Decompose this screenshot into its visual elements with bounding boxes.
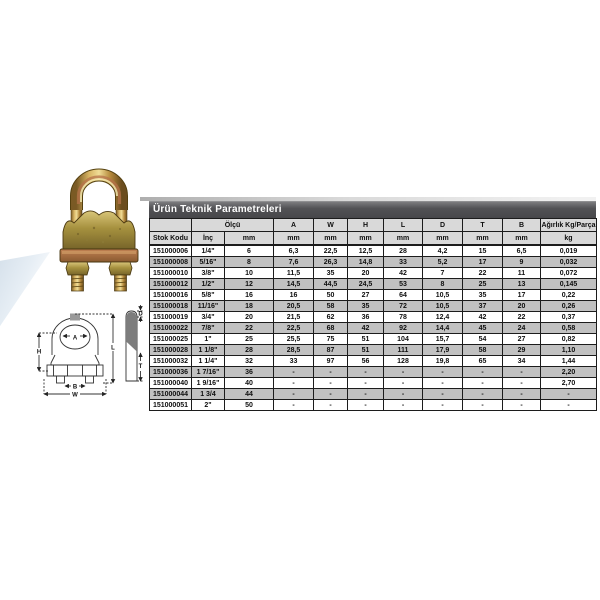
header-inc: İnç [192,232,225,246]
table-cell: 11 [503,268,541,279]
dim-label-t: T [139,364,143,370]
table-cell: - [423,378,463,389]
table-cell: 33 [274,356,314,367]
table-cell: 50 [225,400,274,411]
table-cell: - [463,378,503,389]
table-row: 1510000193/4"2021,562367812,442220,37 [150,312,597,323]
table-cell: - [314,389,348,400]
table-cell: 9 [503,257,541,268]
table-cell: 22,5 [314,245,348,257]
header-dim-b: B [503,219,541,232]
table-cell: 151000008 [150,257,192,268]
saddle-base [60,249,138,262]
table-cell: 75 [314,334,348,345]
table-cell: - [274,378,314,389]
table-cell: - [314,367,348,378]
hex-nut-left [66,262,89,275]
table-cell: - [314,378,348,389]
table-cell: 27 [503,334,541,345]
table-cell: - [503,378,541,389]
table-cell: 10 [225,268,274,279]
table-cell: 7/8" [192,323,225,334]
header-row-1: Ölçü A W H L D T B Ağırlık Kg/Parça [150,219,597,232]
table-cell: 78 [384,312,423,323]
table-row: 1510000103/8"1011,5352042722110,072 [150,268,597,279]
table-cell: 6,3 [274,245,314,257]
table-cell: - [348,389,384,400]
table-cell: 25,5 [274,334,314,345]
table-cell: 7 [423,268,463,279]
table-cell: 151000040 [150,378,192,389]
table-row: 1510000121/2"1214,544,524,553825130,145 [150,279,597,290]
table-cell: 1 3/4 [192,389,225,400]
table-cell: 42 [384,268,423,279]
table-cell: 7,6 [274,257,314,268]
dim-label-a: A [73,336,78,342]
table-cell: - [463,389,503,400]
table-cell: 62 [314,312,348,323]
table-cell: 6 [225,245,274,257]
header-olcu: Ölçü [192,219,274,232]
table-cell: 44,5 [314,279,348,290]
table-cell: - [348,400,384,411]
table-cell: 65 [463,356,503,367]
table-cell: 29 [503,345,541,356]
table-cell: - [423,367,463,378]
table-cell: 8 [225,257,274,268]
table-cell: 40 [225,378,274,389]
page: A H L B W D T Ürün Teknik Parametreleri … [0,0,600,600]
table-cell: 1" [192,334,225,345]
table-cell: - [274,400,314,411]
table-cell: 16 [225,290,274,301]
table-cell: 151000025 [150,334,192,345]
product-photo [54,154,144,302]
table-cell: 151000006 [150,245,192,257]
table-cell: 0,019 [541,245,597,257]
table-cell: 151000044 [150,389,192,400]
table-cell: 14,5 [274,279,314,290]
table-cell: 45 [463,323,503,334]
header-mm: mm [348,232,384,246]
table-cell: 25 [225,334,274,345]
table-row: 1510000165/8"161650276410,535170,22 [150,290,597,301]
table-cell: 42 [348,323,384,334]
table-cell: 35 [463,290,503,301]
table-cell: 42 [463,312,503,323]
table-cell: 0,032 [541,257,597,268]
table-cell: 26,3 [314,257,348,268]
table-cell: 53 [384,279,423,290]
table-cell: 0,22 [541,290,597,301]
table-cell: 151000036 [150,367,192,378]
table-row: 1510000227/8"2222,568429214,445240,58 [150,323,597,334]
table-cell: 32 [225,356,274,367]
header-mm: mm [384,232,423,246]
table-cell: 104 [384,334,423,345]
table-cell: 17 [503,290,541,301]
table-cell: 54 [463,334,503,345]
table-cell: - [314,400,348,411]
table-cell: 36 [348,312,384,323]
technical-drawing: A H L B W D T [27,301,145,403]
header-blank-cell [150,219,192,232]
table-row: 1510000061/4"66,322,512,5284,2156,50,019 [150,245,597,257]
table-cell: 22 [463,268,503,279]
table-cell: 2,20 [541,367,597,378]
table-cell: 16 [274,290,314,301]
table-body: 1510000061/4"66,322,512,5284,2156,50,019… [150,245,597,411]
spec-table-block: Ürün Teknik Parametreleri Ölçü A W H L D… [149,201,596,411]
table-cell: 2" [192,400,225,411]
table-cell: 68 [314,323,348,334]
table-cell: 15 [463,245,503,257]
table-cell: 151000018 [150,301,192,312]
table-cell: 50 [314,290,348,301]
table-cell: 33 [384,257,423,268]
table-cell: 151000012 [150,279,192,290]
table-cell: 2,70 [541,378,597,389]
table-cell: 34 [503,356,541,367]
table-cell: 151000028 [150,345,192,356]
table-cell: 35 [348,301,384,312]
table-cell: 10,5 [423,301,463,312]
table-cell: 11/16" [192,301,225,312]
table-cell: 5,2 [423,257,463,268]
table-cell: 5/8" [192,290,225,301]
table-cell: 151000010 [150,268,192,279]
table-cell: 20 [503,301,541,312]
table-cell: 14,8 [348,257,384,268]
table-cell: 51 [348,334,384,345]
header-mm: mm [225,232,274,246]
header-mm: mm [314,232,348,246]
table-cell: 12,4 [423,312,463,323]
table-cell: - [503,389,541,400]
header-dim-t: T [463,219,503,232]
table-cell: 25 [463,279,503,290]
table-cell: 56 [348,356,384,367]
table-cell: 151000022 [150,323,192,334]
table-cell: 44 [225,389,274,400]
table-cell: 21,5 [274,312,314,323]
table-row: 1510000441 3/444-------- [150,389,597,400]
hex-nut-right [109,262,132,275]
table-cell: - [274,367,314,378]
table-cell: - [423,389,463,400]
table-cell: 24 [503,323,541,334]
table-cell: 14,4 [423,323,463,334]
table-cell: - [384,400,423,411]
table-cell: - [348,367,384,378]
table-cell: 1 1/8" [192,345,225,356]
table-cell: 4,2 [423,245,463,257]
table-cell: 22 [225,323,274,334]
dim-label-l: L [111,346,115,352]
table-cell: 1/4" [192,245,225,257]
header-mm: mm [274,232,314,246]
table-cell: - [541,389,597,400]
header-weight: Ağırlık Kg/Parça [541,219,597,232]
table-cell: 87 [314,345,348,356]
table-row: 1510000085/16"87,626,314,8335,21790,032 [150,257,597,268]
table-cell: 1 9/16" [192,378,225,389]
table-cell: 35 [314,268,348,279]
table-cell: 72 [384,301,423,312]
table-cell: 151000032 [150,356,192,367]
table-cell: - [348,378,384,389]
table-cell: 28 [225,345,274,356]
table-cell: 10,5 [423,290,463,301]
table-cell: 0,82 [541,334,597,345]
table-cell: - [274,389,314,400]
table-cell: - [463,367,503,378]
table-cell: 5/16" [192,257,225,268]
header-stok-kodu: Stok Kodu [150,232,192,246]
table-cell: 151000019 [150,312,192,323]
table-cell: 151000016 [150,290,192,301]
table-cell: 97 [314,356,348,367]
table-cell: 37 [463,301,503,312]
table-cell: 92 [384,323,423,334]
table-cell: 8 [423,279,463,290]
header-mm: mm [463,232,503,246]
table-cell: 151000051 [150,400,192,411]
dim-label-d: D [138,312,143,318]
table-cell: 20 [348,268,384,279]
table-cell: 36 [225,367,274,378]
header-dim-h: H [348,219,384,232]
table-cell: 22 [503,312,541,323]
table-cell: - [541,400,597,411]
header-dim-w: W [314,219,348,232]
header-kg: kg [541,232,597,246]
table-cell: 6,5 [503,245,541,257]
table-cell: 17 [463,257,503,268]
table-cell: 3/8" [192,268,225,279]
table-cell: 28,5 [274,345,314,356]
table-cell: 0,145 [541,279,597,290]
table-row: 15100001811/16"1820,558357210,537200,26 [150,301,597,312]
header-dim-a: A [274,219,314,232]
table-cell: 17,9 [423,345,463,356]
table-row: 1510000401 9/16"40-------2,70 [150,378,597,389]
dim-label-h: H [37,350,41,356]
table-row: 1510000361 7/16"36-------2,20 [150,367,597,378]
table-cell: 13 [503,279,541,290]
table-cell: 1 1/4" [192,356,225,367]
table-cell: - [463,400,503,411]
table-cell: 111 [384,345,423,356]
table-cell: 11,5 [274,268,314,279]
table-cell: 20,5 [274,301,314,312]
spec-table: Ölçü A W H L D T B Ağırlık Kg/Parça Stok… [149,218,597,411]
table-cell: 1 7/16" [192,367,225,378]
dim-label-b: B [73,385,78,391]
header-dim-l: L [384,219,423,232]
table-cell: 22,5 [274,323,314,334]
table-cell: - [503,400,541,411]
table-cell: 12 [225,279,274,290]
table-cell: - [384,389,423,400]
table-cell: 51 [348,345,384,356]
table-cell: 0,072 [541,268,597,279]
header-dim-d: D [423,219,463,232]
table-cell: 15,7 [423,334,463,345]
table-row: 1510000281 1/8"2828,5875111117,958291,10 [150,345,597,356]
table-cell: - [423,400,463,411]
table-cell: 27 [348,290,384,301]
table-row: 1510000321 1/4"3233975612819,865341,44 [150,356,597,367]
table-row: 1510000512"50-------- [150,400,597,411]
header-row-2: Stok Kodu İnç mm mm mm mm mm mm mm mm kg [150,232,597,246]
table-cell: 18 [225,301,274,312]
table-cell: - [384,367,423,378]
dim-label-w: W [72,393,78,399]
table-cell: 20 [225,312,274,323]
table-cell: - [503,367,541,378]
table-cell: - [384,378,423,389]
table-cell: 64 [384,290,423,301]
table-cell: 1/2" [192,279,225,290]
table-cell: 0,58 [541,323,597,334]
table-cell: 0,37 [541,312,597,323]
table-cell: 58 [463,345,503,356]
table-cell: 1,44 [541,356,597,367]
table-cell: 28 [384,245,423,257]
table-cell: 3/4" [192,312,225,323]
table-cell: 58 [314,301,348,312]
header-mm: mm [503,232,541,246]
table-cell: 12,5 [348,245,384,257]
table-cell: 19,8 [423,356,463,367]
table-cell: 0,26 [541,301,597,312]
table-row: 1510000251"2525,5755110415,754270,82 [150,334,597,345]
table-cell: 128 [384,356,423,367]
header-mm: mm [423,232,463,246]
table-cell: 24,5 [348,279,384,290]
table-cell: 1,10 [541,345,597,356]
table-title: Ürün Teknik Parametreleri [149,201,596,218]
